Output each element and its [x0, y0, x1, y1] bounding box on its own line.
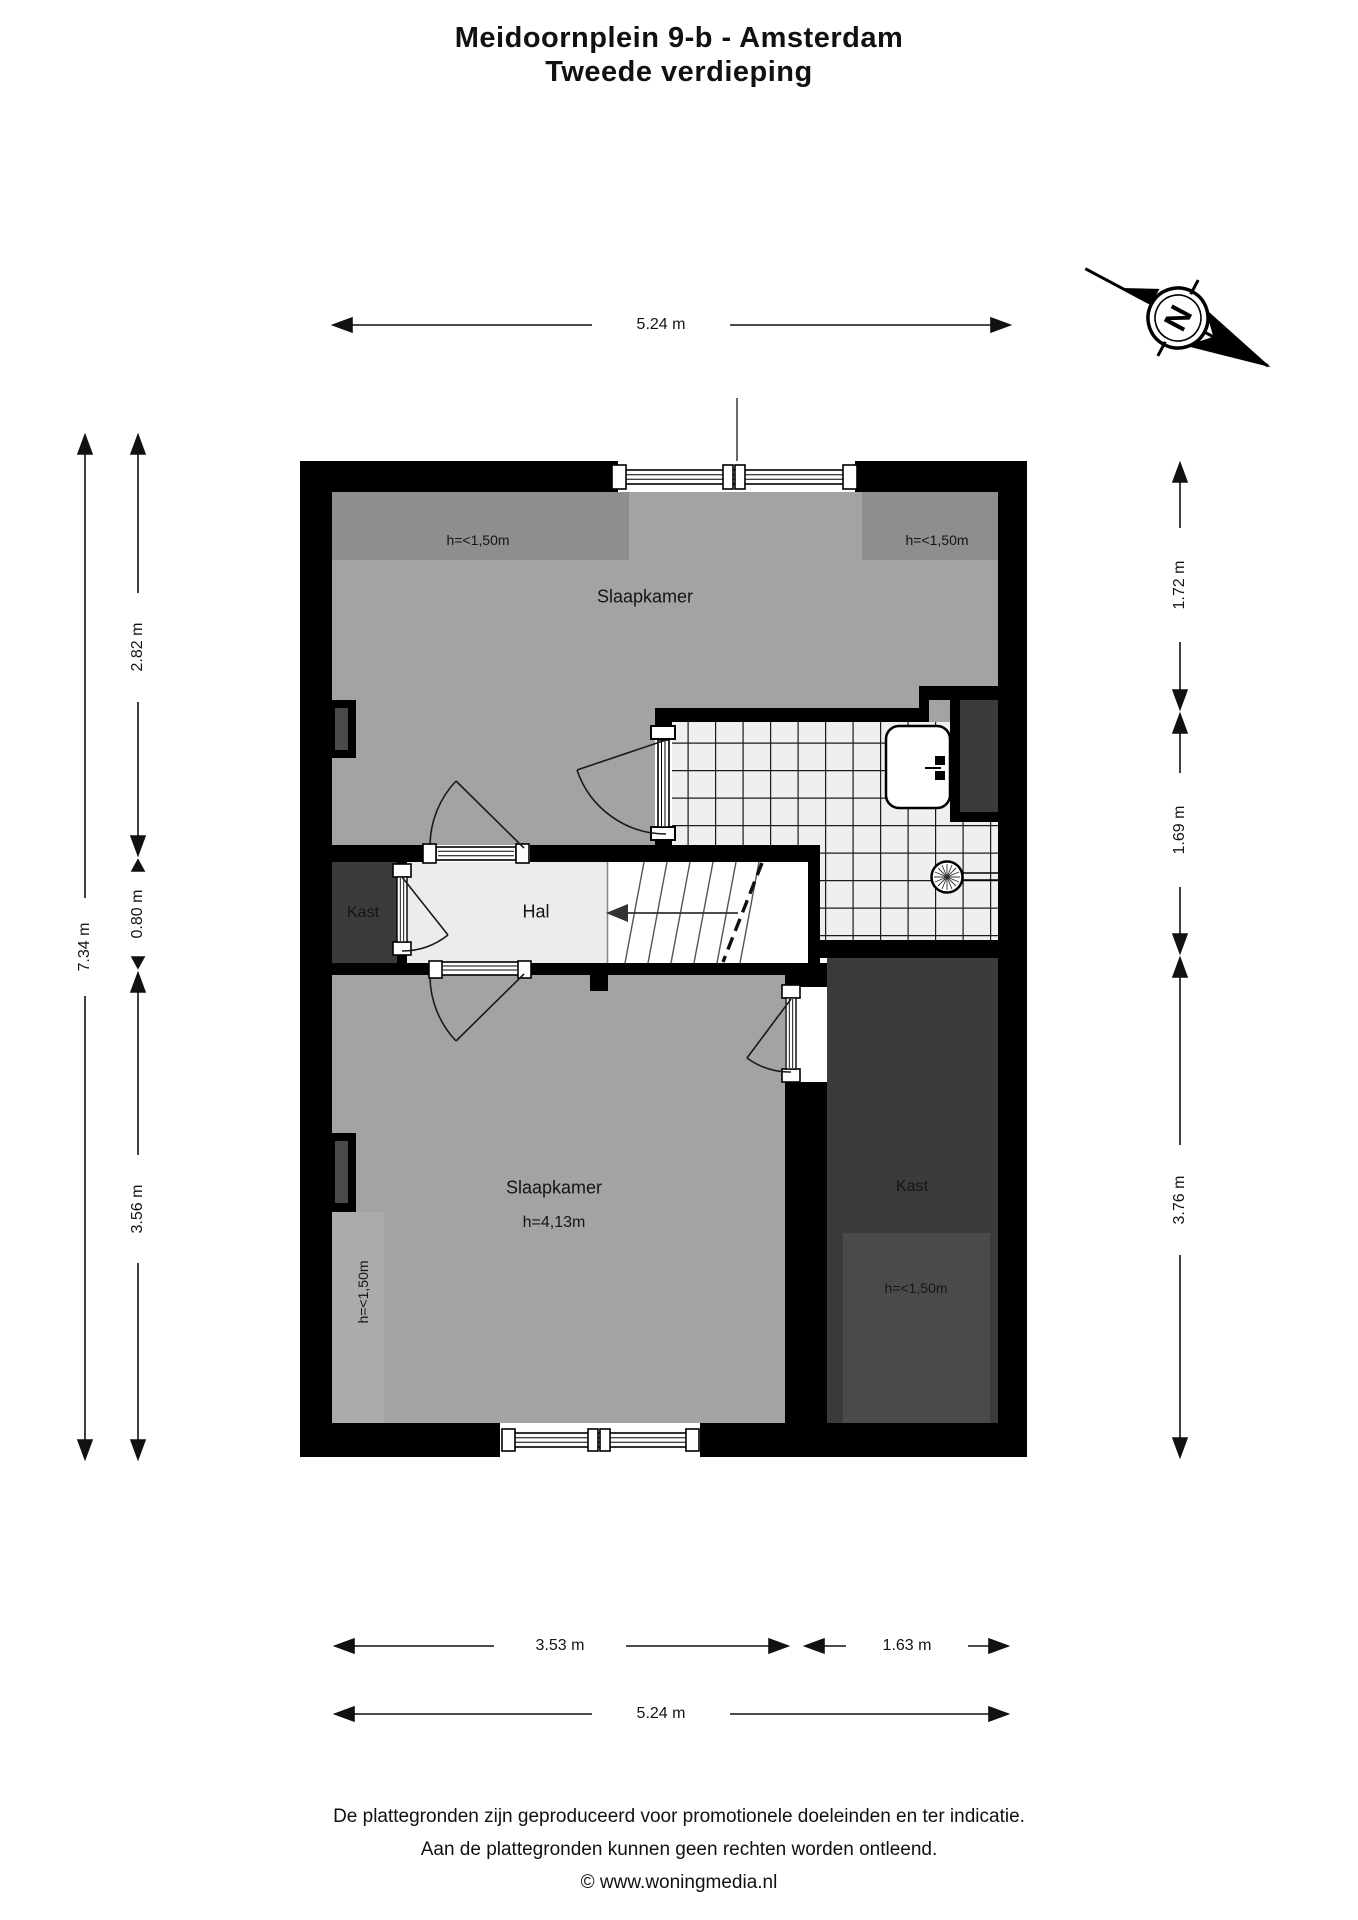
footer-copyright: © www.woningmedia.nl — [0, 1872, 1358, 1894]
compass-icon: N — [1065, 231, 1291, 406]
dim-left-top: 2.82 m — [129, 623, 147, 672]
bathroom-dark-nook — [960, 700, 998, 812]
bathroom-step-wall-top — [919, 686, 998, 700]
dim-right-bottom: 3.76 m — [1171, 1176, 1189, 1225]
dim-left-middle: 0.80 m — [129, 890, 147, 939]
stairs-wall-right — [808, 848, 820, 975]
wall-bottom-left-seg — [300, 1423, 500, 1457]
niche-lower-inner — [335, 1141, 348, 1203]
wall-top-left-seg — [300, 461, 618, 492]
dim-bottom-left: 3.53 m — [536, 1637, 585, 1655]
dim-bottom-total: 5.24 m — [637, 1705, 686, 1723]
dim-right-middle: 1.69 m — [1171, 806, 1189, 855]
hall-wall-top-right — [530, 845, 672, 862]
bathroom-wall-top — [655, 708, 929, 722]
wall-left — [300, 461, 332, 1457]
bedroom-top-low-ceiling-left-zone — [332, 492, 629, 560]
nook-wall-left — [950, 700, 960, 812]
bedroom-top-label: Slaapkamer — [597, 587, 693, 608]
bathroom-tiles-right — [950, 822, 998, 845]
floorplan-drawing: N — [0, 0, 1358, 1920]
dim-top-width: 5.24 m — [637, 316, 686, 334]
bedroom-top-low-right-label: h=<1,50m — [905, 532, 968, 548]
wall-right — [998, 461, 1027, 1457]
dim-bottom-right: 1.63 m — [883, 1637, 932, 1655]
footer-disclaimer-1: De plattegronden zijn geproduceerd voor … — [0, 1806, 1358, 1828]
bedroom-top-low-left-label: h=<1,50m — [446, 532, 509, 548]
bathroom-wall-bottom — [820, 940, 998, 958]
bathroom-door-panel — [658, 740, 669, 827]
hall-label: Hal — [522, 902, 549, 923]
page-title: Meidoornplein 9-b - Amsterdam — [0, 22, 1358, 55]
closet-right-label: Kast — [896, 1178, 928, 1196]
closet-left-label: Kast — [347, 904, 379, 922]
page-subtitle: Tweede verdieping — [0, 56, 1358, 89]
closet-right-low-label: h=<1,50m — [884, 1280, 947, 1296]
hall-wall-bottom-left — [332, 963, 432, 975]
bedroom-bottom-floor — [332, 975, 785, 1423]
hall-floor — [407, 862, 607, 963]
window-bottom — [500, 1423, 700, 1457]
stairs-wall-top — [672, 845, 820, 862]
hall-wall-bottom-right — [530, 963, 785, 975]
bathroom-door-post-top — [651, 726, 675, 739]
bedroom-bottom-label: Slaapkamer — [506, 1178, 602, 1199]
dim-left-total: 7.34 m — [76, 923, 94, 972]
bedroom-bottom-height-label: h=4,13m — [523, 1214, 586, 1232]
wall-stub — [590, 975, 608, 991]
bedroom-top-low-ceiling-right-zone — [862, 492, 998, 560]
bedroom-bottom-low-left-label: h=<1,50m — [355, 1260, 371, 1323]
wall-bottom-right-seg — [700, 1423, 1027, 1457]
dim-left-bottom: 3.56 m — [129, 1185, 147, 1234]
dim-right-top: 1.72 m — [1171, 561, 1189, 610]
floorplan-page: N — [0, 0, 1358, 1920]
hall-wall-top-left — [332, 845, 425, 862]
niche-upper-inner — [335, 708, 348, 750]
nook-wall-bottom — [950, 812, 998, 822]
footer-disclaimer-2: Aan de plattegronden kunnen geen rechten… — [0, 1839, 1358, 1861]
window-top — [612, 398, 857, 492]
closet-right-low-ceiling-zone — [843, 1233, 990, 1423]
bathroom-tiles-lower — [820, 845, 998, 940]
